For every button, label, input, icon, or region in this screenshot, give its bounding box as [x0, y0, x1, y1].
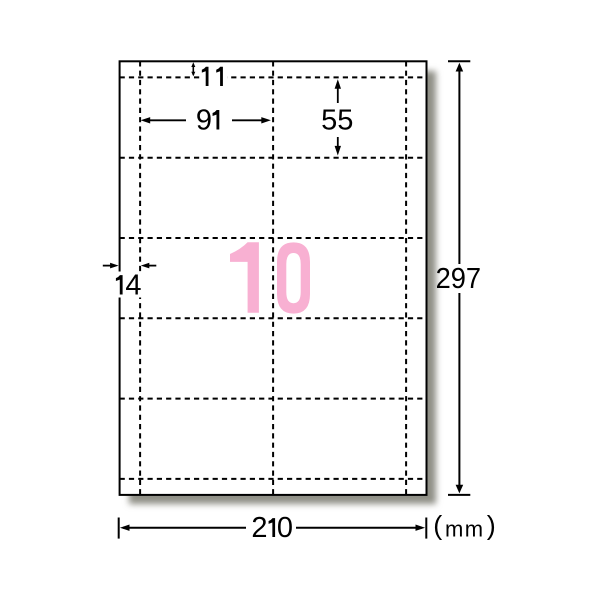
- svg-text:mm: mm: [445, 517, 484, 542]
- svg-text:2: 2: [251, 512, 267, 544]
- svg-text:(: (: [433, 511, 442, 541]
- svg-text:0: 0: [277, 512, 293, 544]
- svg-text:297: 297: [436, 262, 481, 294]
- svg-text:9: 9: [196, 105, 212, 137]
- svg-text:4: 4: [125, 270, 141, 302]
- svg-text:55: 55: [321, 105, 353, 137]
- svg-text:): ): [487, 511, 496, 541]
